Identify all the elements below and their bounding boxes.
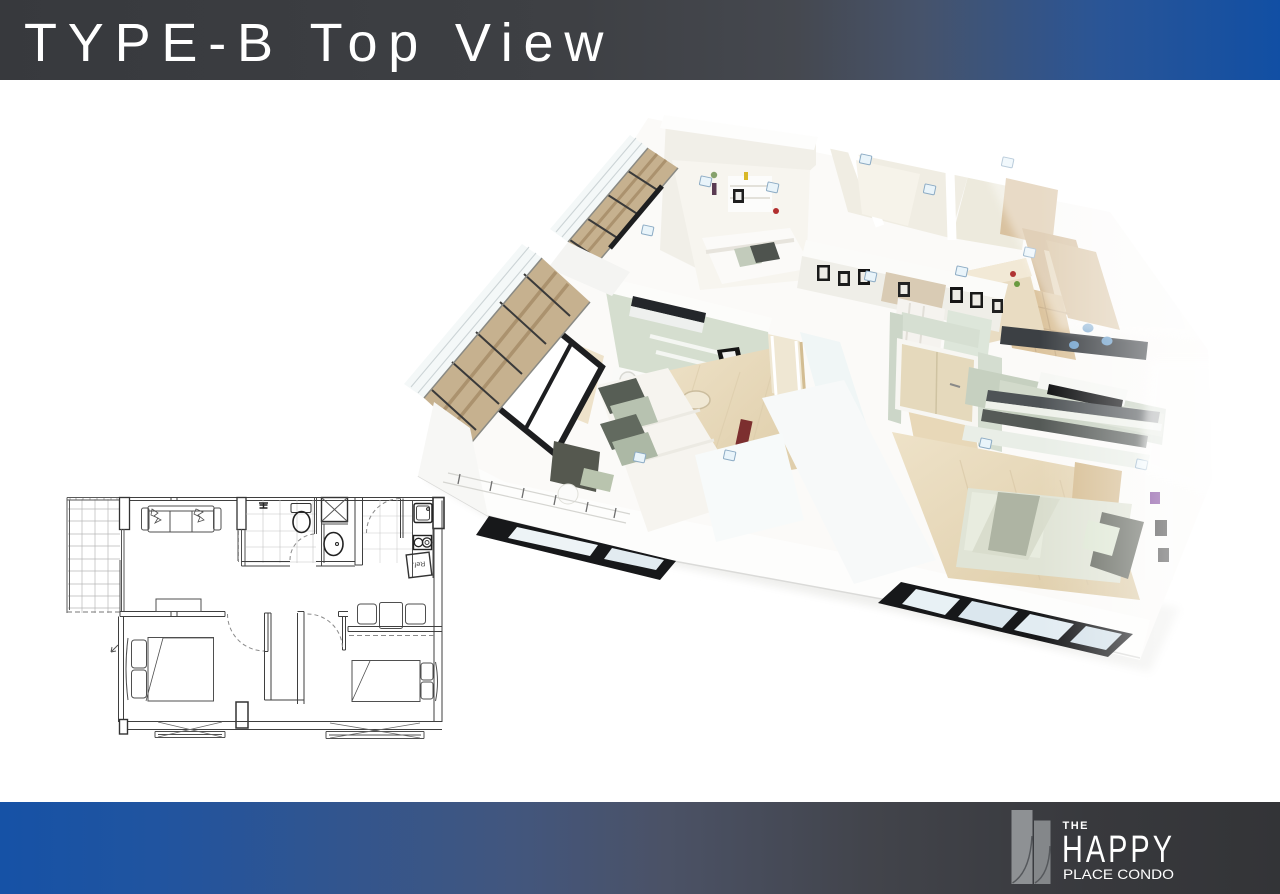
svg-text:Ref.: Ref. [412,559,426,568]
svg-text:PLACE CONDO: PLACE CONDO [1063,866,1174,882]
svg-text:HAPPY: HAPPY [1062,829,1175,871]
